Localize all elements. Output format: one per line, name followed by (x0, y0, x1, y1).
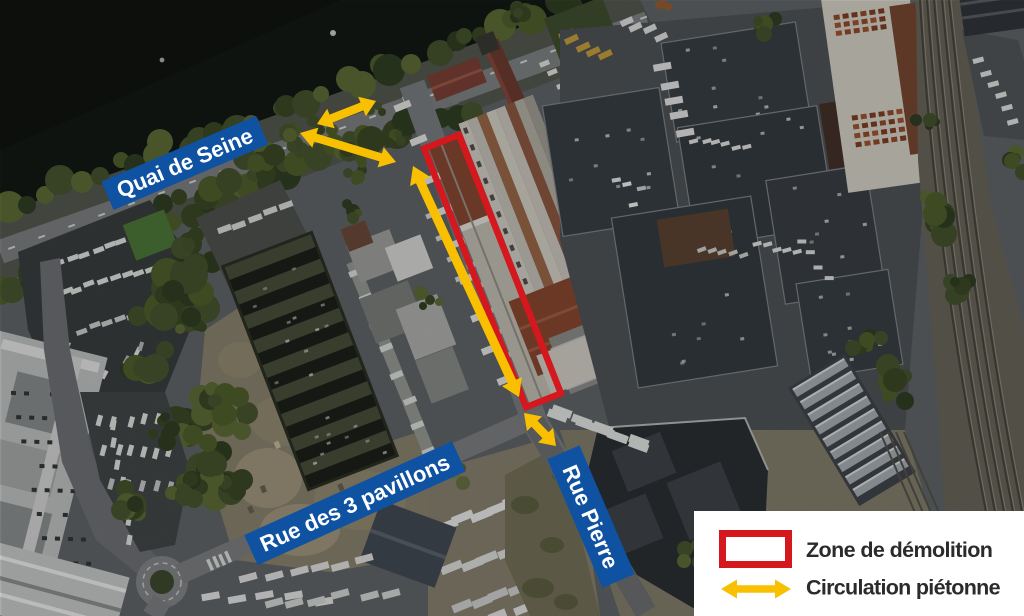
svg-text:Circulation piétonne: Circulation piétonne (806, 576, 1001, 600)
svg-text:Zone de démolition: Zone de démolition (806, 538, 992, 562)
